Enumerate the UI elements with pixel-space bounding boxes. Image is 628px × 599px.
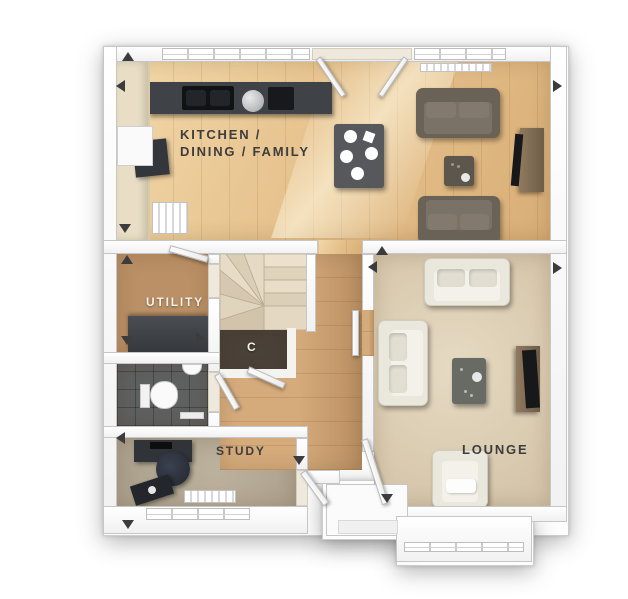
toilet-bowl bbox=[150, 381, 178, 409]
lounge-door-opening bbox=[362, 310, 374, 356]
dimension-arrow bbox=[116, 80, 125, 92]
wall-left bbox=[103, 46, 117, 534]
toilet-cistern bbox=[140, 384, 150, 408]
dimension-arrow bbox=[376, 246, 388, 255]
dimension-arrow bbox=[381, 494, 393, 503]
cupboard-label: C bbox=[247, 339, 257, 356]
family-tv-cabinet bbox=[520, 128, 544, 192]
dimension-arrow bbox=[293, 456, 305, 465]
kitchen-worktop bbox=[148, 82, 332, 114]
study-radiator bbox=[184, 490, 236, 503]
bay-window-walls bbox=[396, 516, 532, 562]
lounge-armchair bbox=[432, 450, 488, 508]
hall-kitchen-opening bbox=[318, 240, 362, 254]
dining-table bbox=[334, 124, 384, 188]
dimension-arrow bbox=[122, 520, 134, 529]
family-radiator bbox=[420, 63, 492, 72]
bay-window bbox=[404, 542, 524, 552]
dimension-arrow bbox=[119, 224, 131, 233]
floorplan-canvas: KITCHEN /DINING / FAMILY UTILITY C STUDY… bbox=[0, 0, 628, 599]
wc-shelf bbox=[180, 412, 204, 419]
wall-right bbox=[550, 46, 567, 522]
dimension-arrow bbox=[553, 262, 562, 274]
wall-utility-seg1 bbox=[208, 254, 220, 264]
family-coffee-table bbox=[444, 156, 474, 186]
wall-wc-study bbox=[103, 426, 308, 438]
dimension-arrow bbox=[368, 261, 377, 273]
kitchen-hob bbox=[268, 87, 294, 110]
kitchen-label-line2: DINING / FAMILY bbox=[180, 144, 310, 159]
kitchen-sink bbox=[182, 86, 234, 110]
lounge-sofa-top bbox=[424, 258, 510, 306]
wall-utility-wc bbox=[103, 352, 220, 364]
lounge-sofa-left bbox=[378, 320, 428, 406]
lounge-door-leaf bbox=[352, 310, 359, 356]
dimension-arrow bbox=[122, 52, 134, 61]
french-door-threshold bbox=[312, 48, 412, 60]
porch-step bbox=[338, 520, 398, 534]
study-label: STUDY bbox=[216, 443, 266, 460]
utility-label: UTILITY bbox=[146, 294, 204, 311]
wall-study-hall bbox=[296, 438, 308, 470]
kitchen-label-line1: KITCHEN / bbox=[180, 127, 261, 142]
family-sofa-bottom bbox=[418, 196, 500, 244]
lounge-coffee-table bbox=[452, 358, 486, 404]
family-window bbox=[414, 48, 506, 60]
family-sofa-top bbox=[416, 88, 500, 138]
dimension-arrow bbox=[121, 336, 133, 345]
kitchen-pot bbox=[242, 90, 264, 112]
dimension-arrow bbox=[121, 255, 133, 264]
dimension-arrow bbox=[116, 432, 125, 444]
kitchen-window bbox=[162, 48, 310, 60]
utility-door-threshold bbox=[208, 264, 220, 298]
dimension-arrow bbox=[196, 332, 205, 344]
dimension-arrow bbox=[553, 80, 562, 92]
kitchen-fridge bbox=[117, 126, 153, 166]
study-window bbox=[146, 508, 250, 520]
staircase bbox=[220, 254, 308, 330]
lounge-label: LOUNGE bbox=[462, 441, 528, 458]
stair-stringer-wall bbox=[306, 254, 316, 332]
wall-mid-right bbox=[362, 240, 567, 254]
kitchen-label: KITCHEN /DINING / FAMILY bbox=[180, 126, 310, 160]
kitchen-unit bbox=[152, 202, 188, 234]
wall-mid-left bbox=[103, 240, 318, 254]
